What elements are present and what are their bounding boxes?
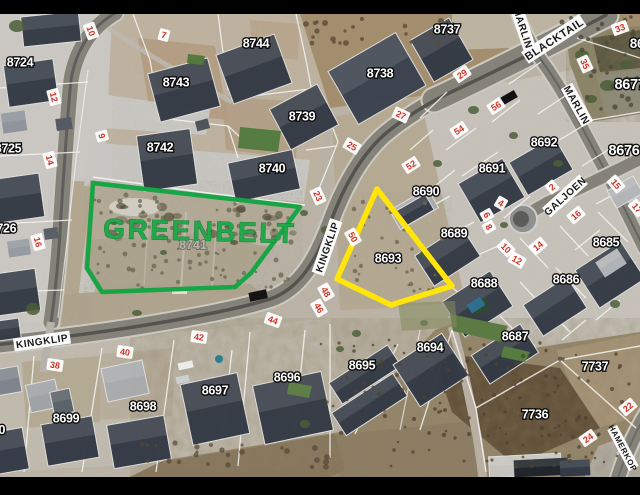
svg-text:8691: 8691 xyxy=(479,162,506,176)
svg-text:8686: 8686 xyxy=(553,273,580,287)
svg-text:8688: 8688 xyxy=(471,277,498,291)
svg-text:8738: 8738 xyxy=(367,67,394,81)
svg-text:GREENBELT: GREENBELT xyxy=(103,213,297,249)
svg-text:8690: 8690 xyxy=(413,185,440,199)
svg-text:8743: 8743 xyxy=(163,76,190,90)
svg-text:8724: 8724 xyxy=(7,56,34,70)
svg-text:0: 0 xyxy=(0,423,6,437)
svg-text:7737: 7737 xyxy=(582,360,609,374)
svg-text:7736: 7736 xyxy=(522,408,549,422)
svg-text:38: 38 xyxy=(49,360,60,371)
svg-text:86: 86 xyxy=(630,36,640,51)
svg-text:8696: 8696 xyxy=(274,371,301,385)
svg-text:8692: 8692 xyxy=(531,136,558,150)
svg-text:8676: 8676 xyxy=(608,143,639,159)
svg-text:8695: 8695 xyxy=(349,359,376,373)
svg-text:8698: 8698 xyxy=(130,400,157,414)
svg-text:8742: 8742 xyxy=(147,141,174,155)
svg-text:42: 42 xyxy=(193,332,204,343)
svg-text:8726: 8726 xyxy=(0,222,17,236)
svg-text:8739: 8739 xyxy=(289,110,316,124)
svg-text:8687: 8687 xyxy=(502,330,529,344)
svg-text:8677: 8677 xyxy=(614,77,640,93)
svg-text:8689: 8689 xyxy=(441,227,468,241)
svg-text:8725: 8725 xyxy=(0,142,22,156)
svg-text:8737: 8737 xyxy=(434,23,461,37)
svg-text:40: 40 xyxy=(119,347,130,358)
svg-text:8740: 8740 xyxy=(259,162,286,176)
svg-text:8685: 8685 xyxy=(593,236,620,250)
svg-text:8699: 8699 xyxy=(53,412,80,426)
svg-text:8697: 8697 xyxy=(202,384,229,398)
svg-text:8693: 8693 xyxy=(375,252,402,266)
svg-text:8744: 8744 xyxy=(243,37,270,51)
svg-text:8694: 8694 xyxy=(417,341,444,355)
